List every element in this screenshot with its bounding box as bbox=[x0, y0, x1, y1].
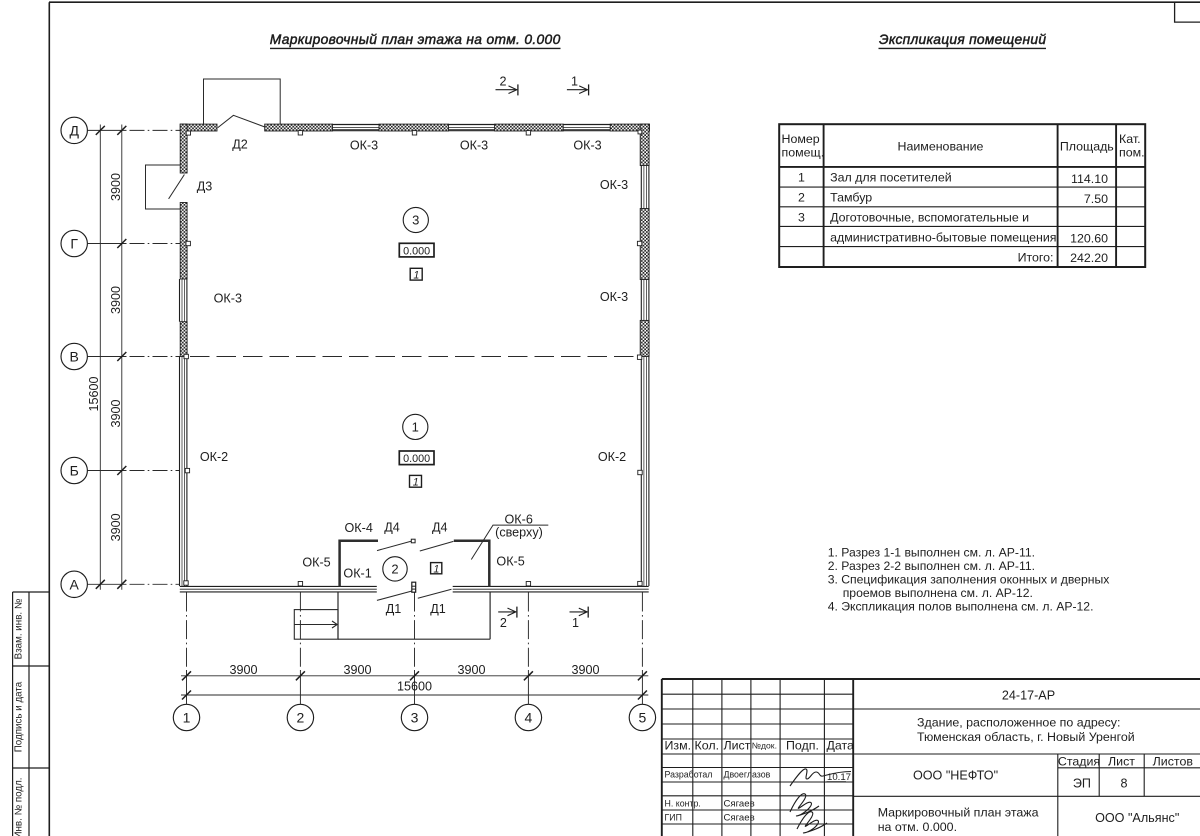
svg-text:Сягаев: Сягаев bbox=[724, 798, 755, 809]
svg-text:ОК-4: ОК-4 bbox=[345, 521, 373, 535]
svg-text:Инв. № подл.: Инв. № подл. bbox=[14, 777, 25, 836]
svg-text:Здание, расположенное по адрес: Здание, расположенное по адресу: bbox=[917, 716, 1120, 730]
svg-text:2: 2 bbox=[500, 616, 507, 630]
svg-text:Г: Г bbox=[70, 236, 78, 252]
svg-text:Подп.: Подп. bbox=[786, 738, 819, 752]
svg-text:Б: Б bbox=[70, 463, 79, 479]
svg-text:Кол.: Кол. bbox=[695, 738, 720, 752]
svg-text:пом.: пом. bbox=[1119, 145, 1145, 159]
svg-text:1: 1 bbox=[798, 171, 805, 185]
svg-text:№док.: №док. bbox=[752, 740, 777, 750]
svg-text:Площадь: Площадь bbox=[1060, 140, 1114, 154]
svg-text:5: 5 bbox=[639, 710, 647, 726]
svg-text:3900: 3900 bbox=[109, 173, 123, 201]
svg-text:Н. контр.: Н. контр. bbox=[665, 798, 701, 808]
svg-text:1: 1 bbox=[572, 616, 579, 630]
svg-text:3900: 3900 bbox=[343, 663, 371, 677]
svg-text:Двоеглазов: Двоеглазов bbox=[724, 770, 771, 780]
svg-text:3. Спецификация заполнения око: 3. Спецификация заполнения оконных и две… bbox=[828, 572, 1110, 586]
svg-text:4: 4 bbox=[525, 710, 533, 726]
svg-text:ОК-1: ОК-1 bbox=[343, 567, 371, 581]
svg-text:1: 1 bbox=[412, 420, 419, 435]
svg-text:Наименование: Наименование bbox=[898, 140, 984, 154]
svg-text:3: 3 bbox=[411, 710, 419, 726]
svg-text:0.000: 0.000 bbox=[403, 245, 430, 257]
svg-text:3900: 3900 bbox=[457, 663, 485, 677]
svg-text:4. Экспликация полов выполнена: 4. Экспликация полов выполнена см. л. АР… bbox=[828, 599, 1094, 613]
svg-text:Итого:: Итого: bbox=[1018, 250, 1054, 264]
svg-text:3900: 3900 bbox=[109, 399, 123, 427]
svg-text:242.20: 242.20 bbox=[1070, 251, 1108, 265]
svg-text:Лист: Лист bbox=[724, 738, 751, 752]
svg-text:3900: 3900 bbox=[229, 663, 257, 677]
svg-text:Тюменская область, г. Новый Ур: Тюменская область, г. Новый Уренгой bbox=[917, 730, 1135, 744]
svg-text:Дата: Дата bbox=[827, 738, 855, 752]
svg-text:Д1: Д1 bbox=[386, 602, 402, 616]
svg-text:Д1: Д1 bbox=[430, 602, 446, 616]
svg-text:ОК-5: ОК-5 bbox=[302, 555, 330, 569]
svg-text:120.60: 120.60 bbox=[1070, 232, 1108, 246]
svg-text:2: 2 bbox=[297, 710, 305, 726]
svg-text:ЭП: ЭП bbox=[1073, 776, 1091, 790]
svg-text:В: В bbox=[70, 349, 79, 365]
svg-text:15600: 15600 bbox=[87, 376, 101, 411]
svg-text:0.000: 0.000 bbox=[403, 453, 430, 465]
svg-text:Д4: Д4 bbox=[384, 521, 400, 535]
svg-text:Д4: Д4 bbox=[432, 521, 448, 535]
svg-text:2: 2 bbox=[499, 74, 506, 88]
svg-text:8: 8 bbox=[1120, 776, 1127, 790]
svg-text:ОК-3: ОК-3 bbox=[350, 139, 378, 153]
svg-text:Сягаев: Сягаев bbox=[724, 813, 755, 824]
svg-text:Д2: Д2 bbox=[232, 138, 248, 152]
svg-text:ОК-5: ОК-5 bbox=[496, 555, 524, 569]
svg-text:Подпись и дата: Подпись и дата bbox=[14, 681, 25, 752]
svg-text:114.10: 114.10 bbox=[1071, 172, 1108, 186]
svg-text:Экспликация помещений: Экспликация помещений bbox=[879, 32, 1046, 47]
svg-text:3900: 3900 bbox=[571, 663, 599, 677]
svg-text:Лист: Лист bbox=[1108, 754, 1135, 768]
svg-text:на отм. 0.000.: на отм. 0.000. bbox=[878, 820, 957, 834]
svg-text:3: 3 bbox=[798, 210, 805, 224]
svg-text:1: 1 bbox=[433, 564, 439, 576]
svg-text:ООО "Альянс": ООО "Альянс" bbox=[1095, 811, 1179, 825]
svg-text:(сверху): (сверху) bbox=[495, 526, 543, 540]
svg-text:ОК-3: ОК-3 bbox=[600, 290, 628, 304]
svg-text:Зал для посетителей: Зал для посетителей bbox=[830, 171, 952, 185]
svg-text:24-17-АР: 24-17-АР bbox=[1002, 689, 1055, 703]
svg-text:3900: 3900 bbox=[109, 513, 123, 541]
svg-text:Д: Д bbox=[69, 122, 79, 138]
svg-text:ОК-2: ОК-2 bbox=[200, 450, 228, 464]
svg-text:Маркировочный план этажа на от: Маркировочный план этажа на отм. 0.000 bbox=[270, 32, 561, 47]
svg-text:1: 1 bbox=[413, 477, 419, 489]
svg-text:ОК-3: ОК-3 bbox=[600, 178, 628, 192]
svg-text:15600: 15600 bbox=[397, 680, 432, 694]
svg-text:ОК-3: ОК-3 bbox=[460, 139, 488, 153]
svg-text:Листов: Листов bbox=[1153, 754, 1194, 768]
svg-text:Номер: Номер bbox=[782, 132, 820, 146]
svg-text:1: 1 bbox=[571, 74, 578, 88]
svg-text:Маркировочный план этажа: Маркировочный план этажа bbox=[878, 806, 1039, 820]
svg-text:7.50: 7.50 bbox=[1084, 192, 1108, 206]
svg-text:1. Разрез 1-1 выполнен см. л.: 1. Разрез 1-1 выполнен см. л. АР-11. bbox=[828, 545, 1035, 559]
svg-text:Д3: Д3 bbox=[197, 180, 213, 194]
svg-text:помещ.: помещ. bbox=[782, 145, 825, 159]
svg-text:2: 2 bbox=[391, 562, 398, 577]
svg-text:1: 1 bbox=[183, 710, 191, 726]
svg-text:административно-бытовые помеще: административно-бытовые помещения bbox=[830, 230, 1056, 244]
svg-text:2. Разрез 2-2 выполнен см. л.: 2. Разрез 2-2 выполнен см. л. АР-11. bbox=[828, 559, 1035, 573]
svg-text:Стадия: Стадия bbox=[1058, 754, 1100, 768]
svg-text:А: А bbox=[70, 576, 80, 592]
svg-text:3900: 3900 bbox=[109, 286, 123, 314]
svg-text:ОК-3: ОК-3 bbox=[214, 292, 242, 306]
svg-text:2: 2 bbox=[798, 191, 805, 205]
svg-text:ОК-3: ОК-3 bbox=[573, 139, 601, 153]
svg-text:Взам. инв. №: Взам. инв. № bbox=[14, 599, 25, 660]
svg-text:ГИП: ГИП bbox=[665, 813, 682, 823]
svg-text:ОК-2: ОК-2 bbox=[598, 450, 626, 464]
svg-text:Кат.: Кат. bbox=[1119, 132, 1141, 146]
svg-text:ООО "НЕФТО": ООО "НЕФТО" bbox=[913, 769, 998, 783]
svg-text:Тамбур: Тамбур bbox=[830, 191, 872, 205]
svg-text:Разработал: Разработал bbox=[665, 770, 713, 780]
svg-text:ОК-6: ОК-6 bbox=[505, 512, 533, 526]
svg-text:3: 3 bbox=[412, 213, 419, 228]
svg-text:Доготовочные, вспомогательные: Доготовочные, вспомогательные и bbox=[830, 210, 1029, 224]
svg-text:1: 1 bbox=[413, 270, 419, 282]
svg-text:проемов выполнена см. л. АР-12: проемов выполнена см. л. АР-12. bbox=[843, 586, 1033, 600]
svg-text:Изм.: Изм. bbox=[665, 738, 692, 752]
